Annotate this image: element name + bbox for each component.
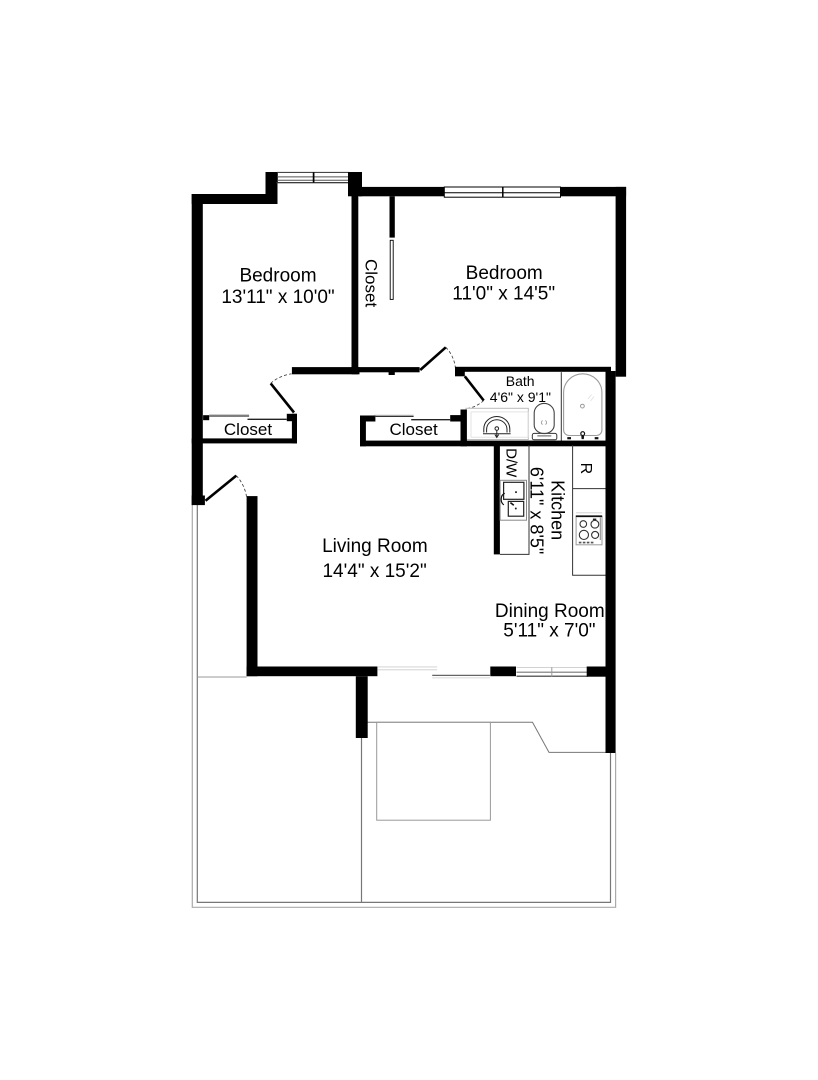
- svg-text:Kitchen: Kitchen: [548, 480, 568, 540]
- svg-text:11'0" x 14'5": 11'0" x 14'5": [452, 284, 555, 305]
- svg-text:Bedroom: Bedroom: [239, 266, 316, 287]
- svg-text:Dining Room: Dining Room: [495, 601, 605, 622]
- svg-text:4'6" x 9'1": 4'6" x 9'1": [490, 389, 551, 405]
- svg-text:5'11" x 7'0": 5'11" x 7'0": [503, 620, 595, 641]
- svg-text:14'4" x 15'2": 14'4" x 15'2": [322, 561, 426, 582]
- svg-text:Closet: Closet: [224, 420, 272, 439]
- svg-text:Bedroom: Bedroom: [466, 263, 543, 284]
- svg-text:D/W: D/W: [503, 448, 520, 478]
- svg-text:Bath: Bath: [506, 373, 535, 389]
- svg-text:R: R: [577, 463, 594, 475]
- svg-text:6'11" x 8'5": 6'11" x 8'5": [526, 467, 546, 554]
- svg-text:Living Room: Living Room: [322, 536, 428, 557]
- svg-text:Closet: Closet: [362, 259, 381, 307]
- svg-text:13'11" x 10'0": 13'11" x 10'0": [221, 287, 334, 308]
- svg-text:Closet: Closet: [390, 420, 438, 439]
